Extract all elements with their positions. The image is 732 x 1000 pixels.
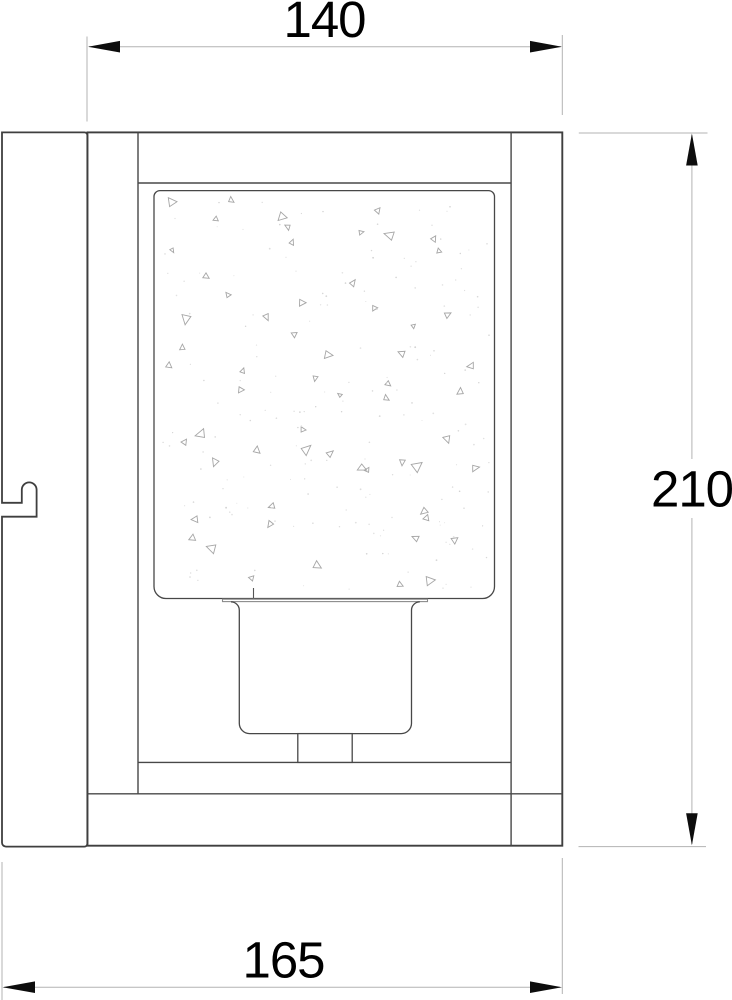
svg-text:165: 165 <box>242 932 324 989</box>
svg-text:210: 210 <box>651 461 732 518</box>
svg-text:140: 140 <box>283 0 365 48</box>
